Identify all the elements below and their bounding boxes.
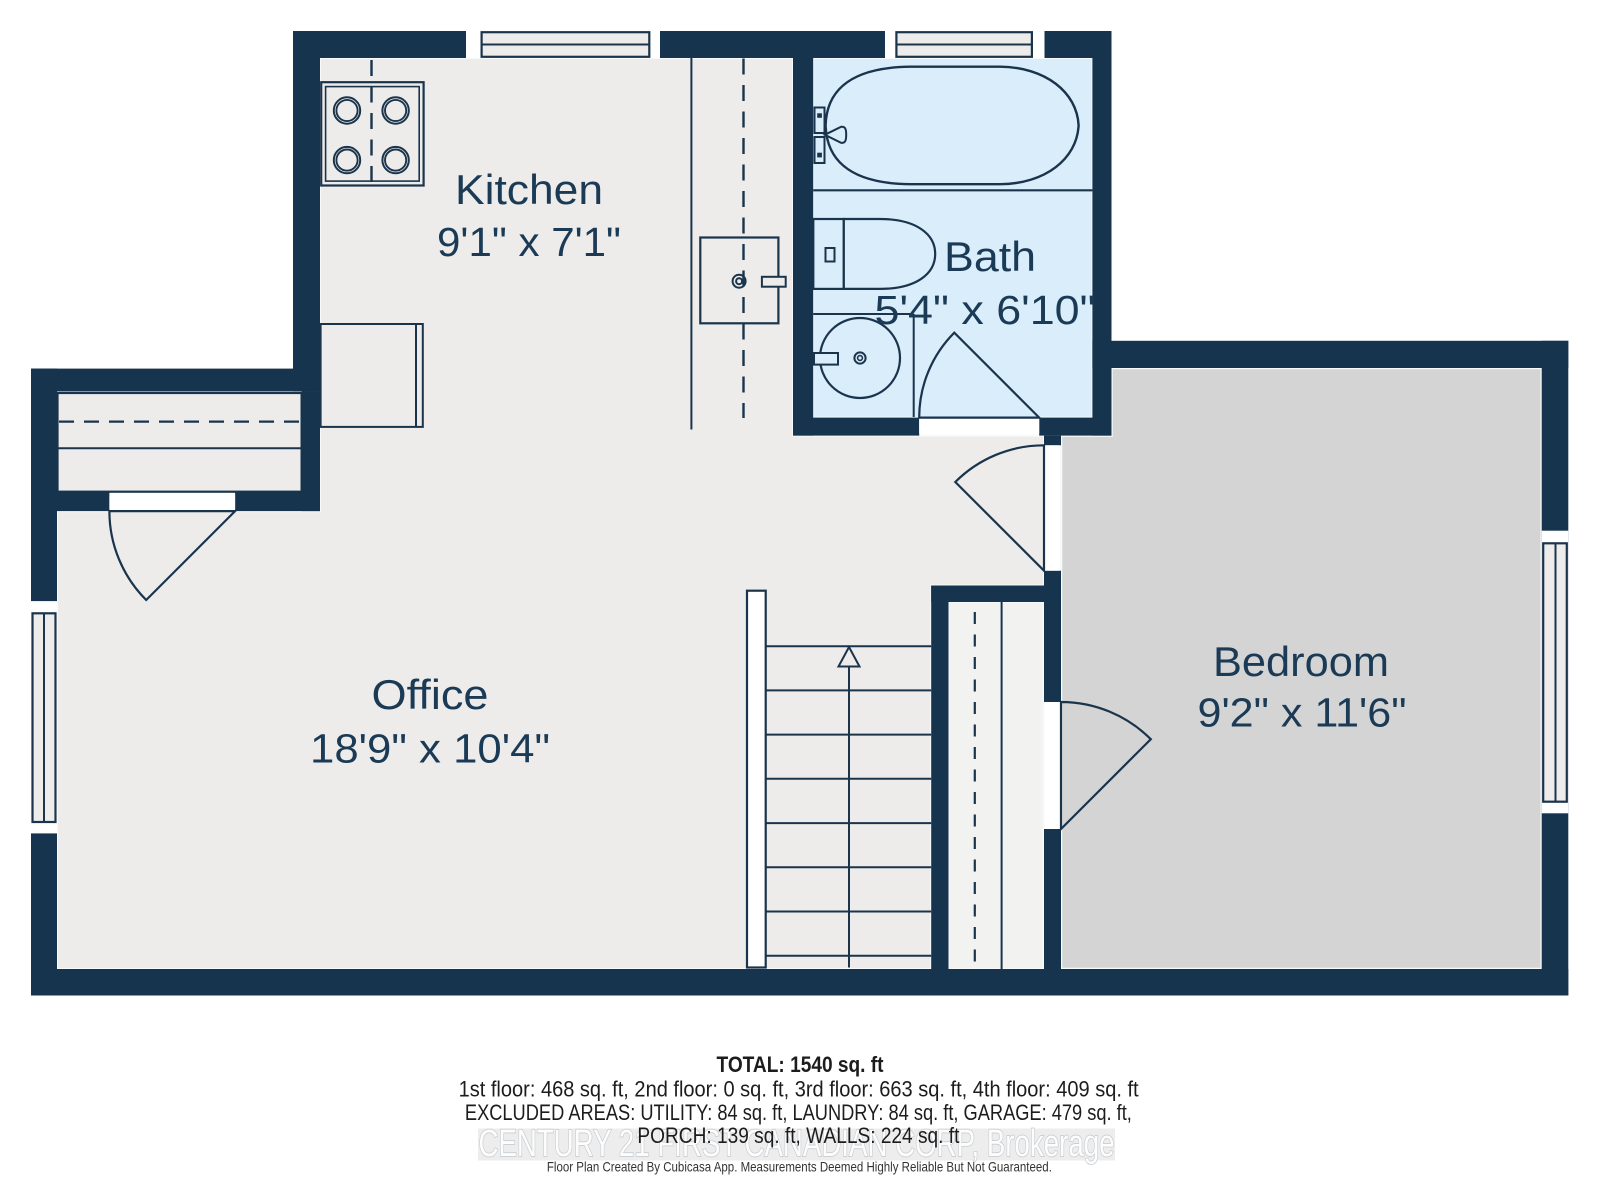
svg-text:Floor Plan Created By Cubicasa: Floor Plan Created By Cubicasa App. Meas… — [547, 1159, 1052, 1175]
svg-text:PORCH: 139 sq. ft, WALLS: 224: PORCH: 139 sq. ft, WALLS: 224 sq. ft — [637, 1123, 959, 1148]
svg-text:18'9" x 10'4": 18'9" x 10'4" — [310, 726, 550, 772]
svg-text:Kitchen: Kitchen — [455, 166, 603, 213]
svg-text:Bedroom: Bedroom — [1213, 638, 1389, 685]
svg-text:Bath: Bath — [944, 233, 1036, 280]
svg-text:9'2" x 11'6": 9'2" x 11'6" — [1198, 689, 1407, 735]
svg-text:TOTAL: 1540 sq. ft: TOTAL: 1540 sq. ft — [717, 1052, 885, 1077]
svg-text:EXCLUDED AREAS: UTILITY: 84 sq: EXCLUDED AREAS: UTILITY: 84 sq. ft, LAUN… — [465, 1100, 1132, 1125]
svg-text:1st floor: 468 sq. ft, 2nd flo: 1st floor: 468 sq. ft, 2nd floor: 0 sq. … — [459, 1077, 1139, 1102]
svg-text:Office: Office — [372, 671, 489, 718]
svg-text:9'1" x 7'1": 9'1" x 7'1" — [437, 219, 621, 265]
svg-text:5'4" x 6'10": 5'4" x 6'10" — [875, 287, 1096, 333]
